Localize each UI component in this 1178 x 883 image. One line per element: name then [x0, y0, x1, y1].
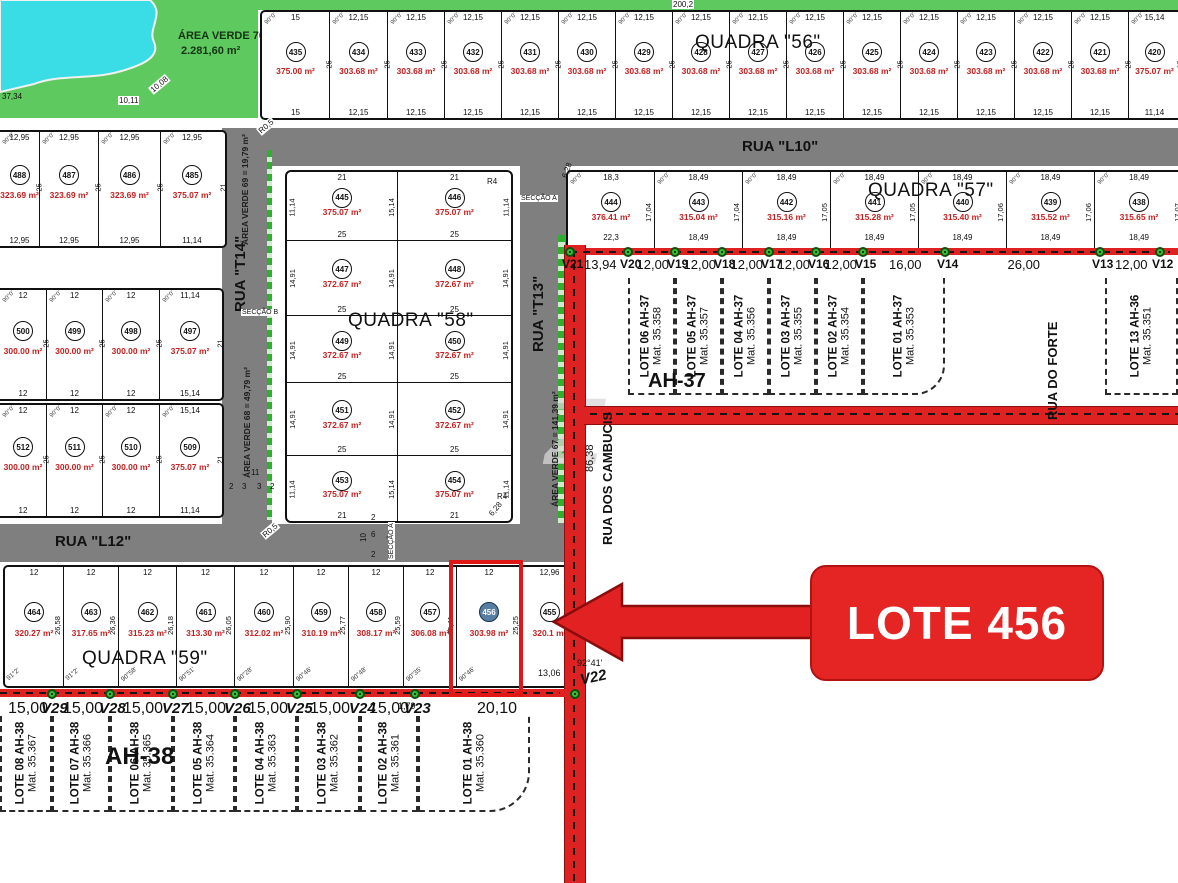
lot-area: 375.07 m²	[392, 207, 517, 217]
angle-label: 91°2'	[64, 667, 80, 682]
lot-428: 90°0'12,1512,15428303.68 m²25	[673, 12, 730, 118]
green-median-t14	[267, 150, 272, 520]
lot-498: 90°0'1212498300.00 m²25	[103, 290, 160, 399]
lot-429: 90°0'12,1512,15429303.68 m²25	[616, 12, 673, 118]
distance-label: 15,00	[248, 700, 288, 718]
lot-number: 452	[445, 400, 465, 420]
distance-label: 15,00	[123, 700, 163, 718]
lot-464: 91°2'12464320.27 m²26,58	[5, 567, 64, 686]
dim-top: 12,15	[616, 13, 672, 22]
dim-label: 1,79	[398, 701, 416, 711]
lot-title: LOTE 01 AH-37	[892, 294, 904, 377]
dim-bottom: 25	[287, 230, 397, 239]
vertex-marker	[717, 247, 727, 257]
dim-top: 12,15	[1015, 13, 1071, 22]
angle-label: 90°35'	[405, 666, 424, 683]
lot-487: 90°0'12,9512,95487323.69 m²25	[40, 132, 99, 246]
lot-number: 424	[919, 42, 939, 62]
lot-number: 432	[463, 42, 483, 62]
lot-number: 454	[445, 471, 465, 491]
dim-bottom: 25	[287, 445, 397, 454]
quadra-58-label: QUADRA "58"	[348, 310, 474, 332]
street-label-t14: RUA "T14"	[232, 236, 249, 312]
ah38-lot-1: LOTE 01 AH-38Mat. 35.360	[418, 716, 530, 812]
lot-text: LOTE 04 AH-38Mat. 35.363	[254, 722, 278, 805]
distance-label: 26,00	[1008, 257, 1041, 272]
area-verde-69-label: ÁREA VERDE 69 = 19,79 m²	[240, 134, 250, 245]
seccao-b-label: SECÇÃO B	[241, 309, 279, 316]
area-verde-70-area: 2.281,60 m²	[181, 45, 240, 57]
dim-top: 12	[119, 568, 176, 577]
quadra-59-label: QUADRA "59"	[82, 648, 208, 670]
lot-matricula: Mat. 35.364	[204, 722, 216, 805]
lot-number: 420	[1145, 42, 1165, 62]
lot-509: 90°0'15,1411,14509375.07 m²21	[160, 405, 220, 516]
lot-matricula: Mat. 35.360	[474, 722, 486, 805]
lot-451: 2514,9114,91451372.67 m²	[287, 383, 398, 455]
vertex-label: V12	[1152, 257, 1173, 271]
lot-448: 2514,91448372.67 m²	[398, 241, 511, 315]
lot-number: 488	[10, 165, 30, 185]
lot-number: 500	[13, 321, 33, 341]
ah37-lot-3: LOTE 03 AH-37Mat. 35.355	[769, 278, 816, 395]
lot-number: 421	[1090, 42, 1110, 62]
lot-447: 2514,9114,91447372.67 m²	[287, 241, 398, 315]
lot-459: 90°46'12459310.19 m²25,77	[294, 567, 349, 686]
lot-matricula: Mat. 35.356	[746, 294, 758, 377]
vertex-marker	[105, 689, 115, 699]
distance-label: 15,00	[186, 700, 226, 718]
dim-top: 12,95	[99, 133, 160, 142]
street-label-rua-dos-cambucis: RUA DOS CAMBUCIS	[600, 412, 615, 545]
lot-number: 443	[689, 192, 709, 212]
pond	[0, 0, 157, 92]
dim-bottom: 12,15	[1072, 108, 1128, 117]
dim-label: 3	[242, 482, 246, 491]
lot-433: 90°0'12,1512,15433303.68 m²25	[388, 12, 445, 118]
lot-number: 439	[1041, 192, 1061, 212]
distance-label: 12,00	[684, 257, 717, 272]
dim-label: R4	[487, 177, 497, 186]
lot-452: 2514,91452372.67 m²	[398, 383, 511, 455]
vertex-marker	[1155, 247, 1165, 257]
dim-label: 3	[257, 482, 261, 491]
distance-label: 12,00	[778, 257, 811, 272]
dim-top: 18,49	[1007, 173, 1094, 182]
vertex-label: V14	[937, 257, 958, 271]
lot-area: 315.65 m²	[1089, 212, 1178, 222]
distance-label: 12,00	[1115, 257, 1148, 272]
lot-number: 450	[445, 331, 465, 351]
lot-number: 425	[862, 42, 882, 62]
lot-456-highlight-rect	[449, 560, 523, 697]
dim-top: 15,14	[1129, 13, 1178, 22]
dim-bottom: 12,15	[958, 108, 1014, 117]
lote-456-callout-text: LOTE 456	[847, 596, 1067, 650]
dim-bottom: 12,15	[673, 108, 729, 117]
distance-label: 20,10	[477, 700, 517, 718]
lot-matricula: Mat. 35.366	[81, 722, 93, 805]
distance-label: 15,00	[8, 700, 48, 718]
lot-matricula: Mat. 35.361	[389, 722, 401, 805]
dim-top: 12,95	[40, 133, 98, 142]
dim-bottom: 12,15	[901, 108, 957, 117]
dim-bottom: 12	[47, 506, 102, 515]
vertex-marker	[410, 689, 420, 699]
vertex-label: V13	[1092, 257, 1113, 271]
ah-37-label: AH-37	[648, 370, 706, 393]
ah38-lot-2: LOTE 02 AH-38Mat. 35.361	[360, 716, 418, 812]
vertex-marker	[623, 247, 633, 257]
lot-number: 434	[349, 42, 369, 62]
lot-matricula: Mat. 35.355	[793, 294, 805, 377]
lot-500: 90°0'1212500300.00 m²25	[0, 290, 47, 399]
ah38-lot-7: LOTE 07 AH-38Mat. 35.366	[52, 716, 110, 812]
boundary-dash-top	[570, 251, 1170, 253]
road-rua-l10	[255, 128, 1178, 166]
dim-label: 2	[270, 482, 274, 491]
dim-label: 6	[371, 530, 375, 539]
vertex-label: V21	[562, 257, 583, 271]
ah37-lot-1: LOTE 01 AH-37Mat. 35.353	[863, 278, 945, 395]
dim-bottom: 18,49	[919, 233, 1006, 242]
red-road-vertical-dash	[573, 250, 575, 883]
dim-bottom: 18,49	[655, 233, 742, 242]
dim-label: 37,34	[2, 92, 22, 101]
vertex-marker	[230, 689, 240, 699]
lot-area: 372.67 m²	[392, 420, 517, 430]
dim-bottom: 12,15	[844, 108, 900, 117]
lot-number: 485	[182, 165, 202, 185]
dim-top: 12,15	[388, 13, 444, 22]
dim-bottom: 12,15	[330, 108, 387, 117]
ah38-lot-5: LOTE 05 AH-38Mat. 35.364	[173, 716, 235, 812]
lot-number: 431	[520, 42, 540, 62]
dim-label: 2	[229, 482, 233, 491]
lot-number: 442	[777, 192, 797, 212]
lot-511: 90°0'1212511300.00 m²25	[47, 405, 103, 516]
q58-row: 2514,9114,91451372.67 m²2514,91452372.67…	[287, 383, 511, 456]
dim-label: R4	[497, 492, 507, 501]
dim-top: 12	[103, 406, 159, 415]
lot-text: LOTE 01 AH-37Mat. 35.353	[892, 294, 916, 377]
dim-bottom: 25	[398, 445, 511, 454]
dim-top: 12	[64, 568, 118, 577]
dim-bottom: 12,15	[559, 108, 615, 117]
dim-bottom: 12	[0, 389, 46, 398]
lot-number: 461	[196, 602, 216, 622]
street-label-l12: RUA "L12"	[55, 533, 131, 550]
lot-number: 460	[254, 602, 274, 622]
q58-row: 2111,1415,14453375.07 m²2111,14454375.07…	[287, 456, 511, 521]
lot-row-left1: 90°0'12,9512,95488323.69 m²2590°0'12,951…	[0, 130, 227, 248]
dim-top: 21	[287, 173, 397, 182]
lot-text: LOTE 04 AH-37Mat. 35.356	[734, 294, 758, 377]
lot-number: 453	[332, 471, 352, 491]
dim-top: 12,15	[1072, 13, 1128, 22]
dim-top: 12,15	[787, 13, 843, 22]
lot-485: 90°0'12,9511,14485375.07 m²21	[161, 132, 223, 246]
vertex-label: V27	[162, 700, 189, 717]
lot-423: 90°0'12,1512,15423303.68 m²25	[958, 12, 1015, 118]
vertex-marker	[811, 247, 821, 257]
lot-number: 509	[180, 437, 200, 457]
distance-label: 13,94	[584, 257, 617, 272]
distance-label: 15,00	[310, 700, 350, 718]
lot-number: 457	[420, 602, 440, 622]
lot-number: 499	[65, 321, 85, 341]
lot-421: 90°0'12,1512,15421303.68 m²25	[1072, 12, 1129, 118]
lot-444: 90°0'18,322,3444376.41 m²17,04	[568, 172, 655, 251]
distance-label: 12,00	[637, 257, 670, 272]
dim-bottom: 12,15	[502, 108, 558, 117]
lot-number: 459	[311, 602, 331, 622]
dim-bottom: 12,15	[388, 108, 444, 117]
lot-matricula: Mat. 35.358	[652, 294, 664, 377]
dim-bottom: 12,95	[40, 236, 98, 245]
ah-38-label: AH-38	[105, 743, 174, 771]
dim-side: 17,07	[1173, 203, 1178, 222]
distance-label: 15,00	[63, 700, 103, 718]
lot-442: 90°0'18,4918,49442315.16 m²17,05	[743, 172, 831, 251]
lot-title: LOTE 03 AH-37	[781, 294, 793, 377]
vertex-marker	[292, 689, 302, 699]
dim-top: 12	[47, 291, 102, 300]
dim-top: 18,49	[655, 173, 742, 182]
vertex-label: V15	[855, 257, 876, 271]
dim-side: 21	[218, 184, 227, 192]
lot-420: 90°0'15,1411,14420375.07 m²25	[1129, 12, 1178, 118]
lot-number: 423	[976, 42, 996, 62]
dim-label: 2	[371, 550, 375, 559]
lot-area: 372.67 m²	[392, 350, 517, 360]
lot-number: 438	[1129, 192, 1149, 212]
lot-number: 511	[65, 437, 85, 457]
lot-number: 463	[81, 602, 101, 622]
dim-top: 12,95	[0, 133, 39, 142]
dim-label: 10	[359, 533, 368, 542]
lot-497: 90°0'11,1415,14497375.07 m²21	[160, 290, 220, 399]
ah38-lot-3: LOTE 03 AH-38Mat. 35.362	[297, 716, 360, 812]
vertex-marker	[764, 247, 774, 257]
lot-title: LOTE 04 AH-37	[734, 294, 746, 377]
dim-bottom: 11,14	[1129, 108, 1178, 117]
dim-top: 12,95	[161, 133, 223, 142]
quadra-56-label: QUADRA "56"	[695, 32, 821, 54]
vertex-marker	[565, 247, 575, 257]
vertex-marker	[1095, 247, 1105, 257]
dim-label: 2	[371, 513, 375, 522]
lot-title: LOTE 03 AH-38	[317, 722, 329, 805]
dim-top: 12	[349, 568, 403, 577]
lot-area: 375.07 m²	[281, 207, 403, 217]
ah38-lot-8: LOTE 08 AH-38Mat. 35.367	[0, 716, 52, 812]
lot-title: LOTE 05 AH-38	[192, 722, 204, 805]
vertex-marker	[858, 247, 868, 257]
lot-445: 212511,1415,14445375.07 m²	[287, 172, 398, 240]
lot-matricula: Mat. 35.362	[329, 722, 341, 805]
lot-number: 444	[601, 192, 621, 212]
lot-number: 498	[121, 321, 141, 341]
dim-bottom: 12	[0, 506, 46, 515]
lot-number: 445	[332, 188, 352, 208]
dim-bottom: 18,49	[1095, 233, 1178, 242]
lot-435: 90°0'1515435375.00 m²25	[262, 12, 330, 118]
quadra-57-label: QUADRA "57"	[868, 180, 994, 202]
dim-top: 12	[5, 568, 63, 577]
lot-number: 451	[332, 400, 352, 420]
lot-area: 372.67 m²	[281, 279, 403, 289]
lot-number: 448	[445, 259, 465, 279]
seccao-a-label: SECÇÃO A	[520, 195, 558, 202]
lot-title: LOTE 07 AH-38	[69, 722, 81, 805]
area-verde-67-label: ÁREA VERDE 67 = 141,39 m²	[550, 391, 560, 507]
lot-text: LOTE 03 AH-37Mat. 35.355	[781, 294, 805, 377]
dim-top: 12,15	[673, 13, 729, 22]
lot-text: LOTE 06 AH-37Mat. 35.358	[640, 294, 664, 377]
dim-bottom: 12	[47, 389, 102, 398]
lot-title: LOTE 04 AH-38	[254, 722, 266, 805]
dim-top: 12	[103, 291, 159, 300]
red-road-horizontal-dash	[590, 413, 1178, 415]
dim-bottom: 15	[262, 108, 329, 117]
lot-text: LOTE 02 AH-38Mat. 35.361	[377, 722, 401, 805]
lot-499: 90°0'1212499300.00 m²25	[47, 290, 103, 399]
dim-label: 10,11	[118, 96, 139, 105]
dim-top: 15,14	[160, 406, 220, 415]
lot-number: 429	[634, 42, 654, 62]
lot-430: 90°0'12,1512,15430303.68 m²25	[559, 12, 616, 118]
dim-top: 12,15	[730, 13, 786, 22]
dim-top: 18,49	[743, 173, 830, 182]
plat-map: ÁREA VERDE 70 2.281,60 m² Z RUA "L10" RU…	[0, 0, 1178, 883]
lot-432: 90°0'12,1512,15432303.68 m²25	[445, 12, 502, 118]
lot-439: 90°0'18,4918,49439315.52 m²17,06	[1007, 172, 1095, 251]
distance-label: 16,00	[889, 257, 922, 272]
lot-number: 487	[59, 165, 79, 185]
vertex-marker	[47, 689, 57, 699]
q58-row: 212511,1415,14445375.07 m²212511,1444637…	[287, 172, 511, 241]
lot-matricula: Mat. 35.367	[26, 722, 38, 805]
lot-425: 90°0'12,1512,15425303.68 m²25	[844, 12, 901, 118]
dim-bottom: 25	[287, 372, 397, 381]
dim-label: 11	[251, 468, 259, 477]
lot-matricula: Mat. 35.353	[904, 294, 916, 377]
lote-456-callout: LOTE 456	[810, 565, 1104, 681]
lot-460: 90°28'12460312.02 m²25,90	[235, 567, 294, 686]
lot-title: LOTE 05 AH-37	[687, 294, 699, 377]
lot-title: LOTE 02 AH-38	[377, 722, 389, 805]
lot-title: LOTE 13 AH-36	[1130, 294, 1142, 377]
lot-title: LOTE 08 AH-38	[14, 722, 26, 805]
dim-top: 12	[294, 568, 348, 577]
vertex-marker	[940, 247, 950, 257]
dim-label: 200,2	[672, 0, 694, 9]
lot-row-left3: 90°0'1212512300.00 m²2590°0'1212511300.0…	[0, 403, 224, 518]
lot-number: 449	[332, 331, 352, 351]
dim-bottom: 11,14	[160, 506, 220, 515]
lot-number: 497	[180, 321, 200, 341]
lot-number: 486	[120, 165, 140, 185]
dim-bottom: 12,15	[730, 108, 786, 117]
dim-label: 86,38	[584, 444, 596, 472]
lot-427: 90°0'12,1512,15427303.68 m²25	[730, 12, 787, 118]
lot-number: 464	[24, 602, 44, 622]
dim-bottom: 22,3	[568, 233, 654, 242]
dim-bottom: 15,14	[160, 389, 220, 398]
vertex-marker	[570, 689, 580, 699]
lot-number: 447	[332, 259, 352, 279]
lot-row-q56: 90°0'1515435375.00 m²2590°0'12,1512,1543…	[260, 10, 1178, 120]
area-verde-68-label: ÁREA VERDE 68 = 49,79 m²	[242, 367, 252, 478]
dim-bottom: 25	[398, 230, 511, 239]
angle-label: 91°2'	[5, 667, 21, 682]
dim-top: 11,14	[160, 291, 220, 300]
lot-434: 90°0'12,1512,15434303.68 m²25	[330, 12, 388, 118]
dim-top: 18,49	[1095, 173, 1178, 182]
dim-side: 21	[215, 455, 224, 463]
lot-number: 446	[445, 188, 465, 208]
seccao-a-vertical-label: SECÇÃO A	[388, 522, 395, 560]
dim-top: 12,15	[559, 13, 615, 22]
angle-label: 90°28'	[236, 666, 255, 683]
arrow-icon	[548, 574, 820, 670]
lot-number: 458	[366, 602, 386, 622]
dim-top: 12,15	[445, 13, 501, 22]
lot-area: 372.67 m²	[281, 350, 403, 360]
dim-bottom: 11,14	[161, 236, 223, 245]
lot-title: LOTE 06 AH-37	[640, 294, 652, 377]
ah37-lot-4: LOTE 04 AH-37Mat. 35.356	[722, 278, 769, 395]
lot-text: LOTE 03 AH-38Mat. 35.362	[317, 722, 341, 805]
lot-510: 90°0'1212510300.00 m²25	[103, 405, 160, 516]
lot-453: 2111,1415,14453375.07 m²	[287, 456, 398, 521]
lot-text: LOTE 05 AH-38Mat. 35.364	[192, 722, 216, 805]
lot-number: 435	[286, 42, 306, 62]
lot-text: LOTE 13 AH-36Mat. 35.351	[1130, 294, 1154, 377]
lot-text: LOTE 02 AH-37Mat. 35.354	[828, 294, 852, 377]
vertex-label: V25	[286, 700, 313, 717]
lot-row-left2: 90°0'1212500300.00 m²2590°0'1212499300.0…	[0, 288, 224, 401]
dim-top: 12,15	[958, 13, 1014, 22]
lot-block-q58: 212511,1415,14445375.07 m²212511,1444637…	[285, 170, 513, 523]
dim-bottom: 12,15	[616, 108, 672, 117]
vertex-marker	[355, 689, 365, 699]
lot-text: LOTE 08 AH-38Mat. 35.367	[14, 722, 38, 805]
dim-bottom: 12	[103, 506, 159, 515]
dim-top: 15	[262, 13, 329, 22]
distance-label: 12,00	[731, 257, 764, 272]
lot-matricula: Mat. 35.363	[266, 722, 278, 805]
lot-486: 90°0'12,9512,95486323.69 m²25	[99, 132, 161, 246]
distance-label: 12,00	[825, 257, 858, 272]
lot-text: LOTE 05 AH-37Mat. 35.357	[687, 294, 711, 377]
lot-matricula: Mat. 35.351	[1142, 294, 1154, 377]
dim-side: 21	[215, 339, 224, 347]
angle-label: 90°46'	[295, 666, 314, 683]
street-label-t13: RUA "T13"	[530, 276, 547, 352]
dim-top: 18,3	[568, 173, 654, 182]
lot-488: 90°0'12,9512,95488323.69 m²25	[0, 132, 40, 246]
dim-top: 12	[47, 406, 102, 415]
red-road-vertical	[564, 245, 586, 883]
lot-443: 90°0'18,4918,49443315.04 m²17,04	[655, 172, 743, 251]
dim-bottom: 12,15	[1015, 108, 1071, 117]
lot-422: 90°0'12,1512,15422303.68 m²25	[1015, 12, 1072, 118]
lot-area: 372.67 m²	[392, 279, 517, 289]
dim-top: 12,15	[844, 13, 900, 22]
street-label-l10: RUA "L10"	[742, 138, 818, 155]
